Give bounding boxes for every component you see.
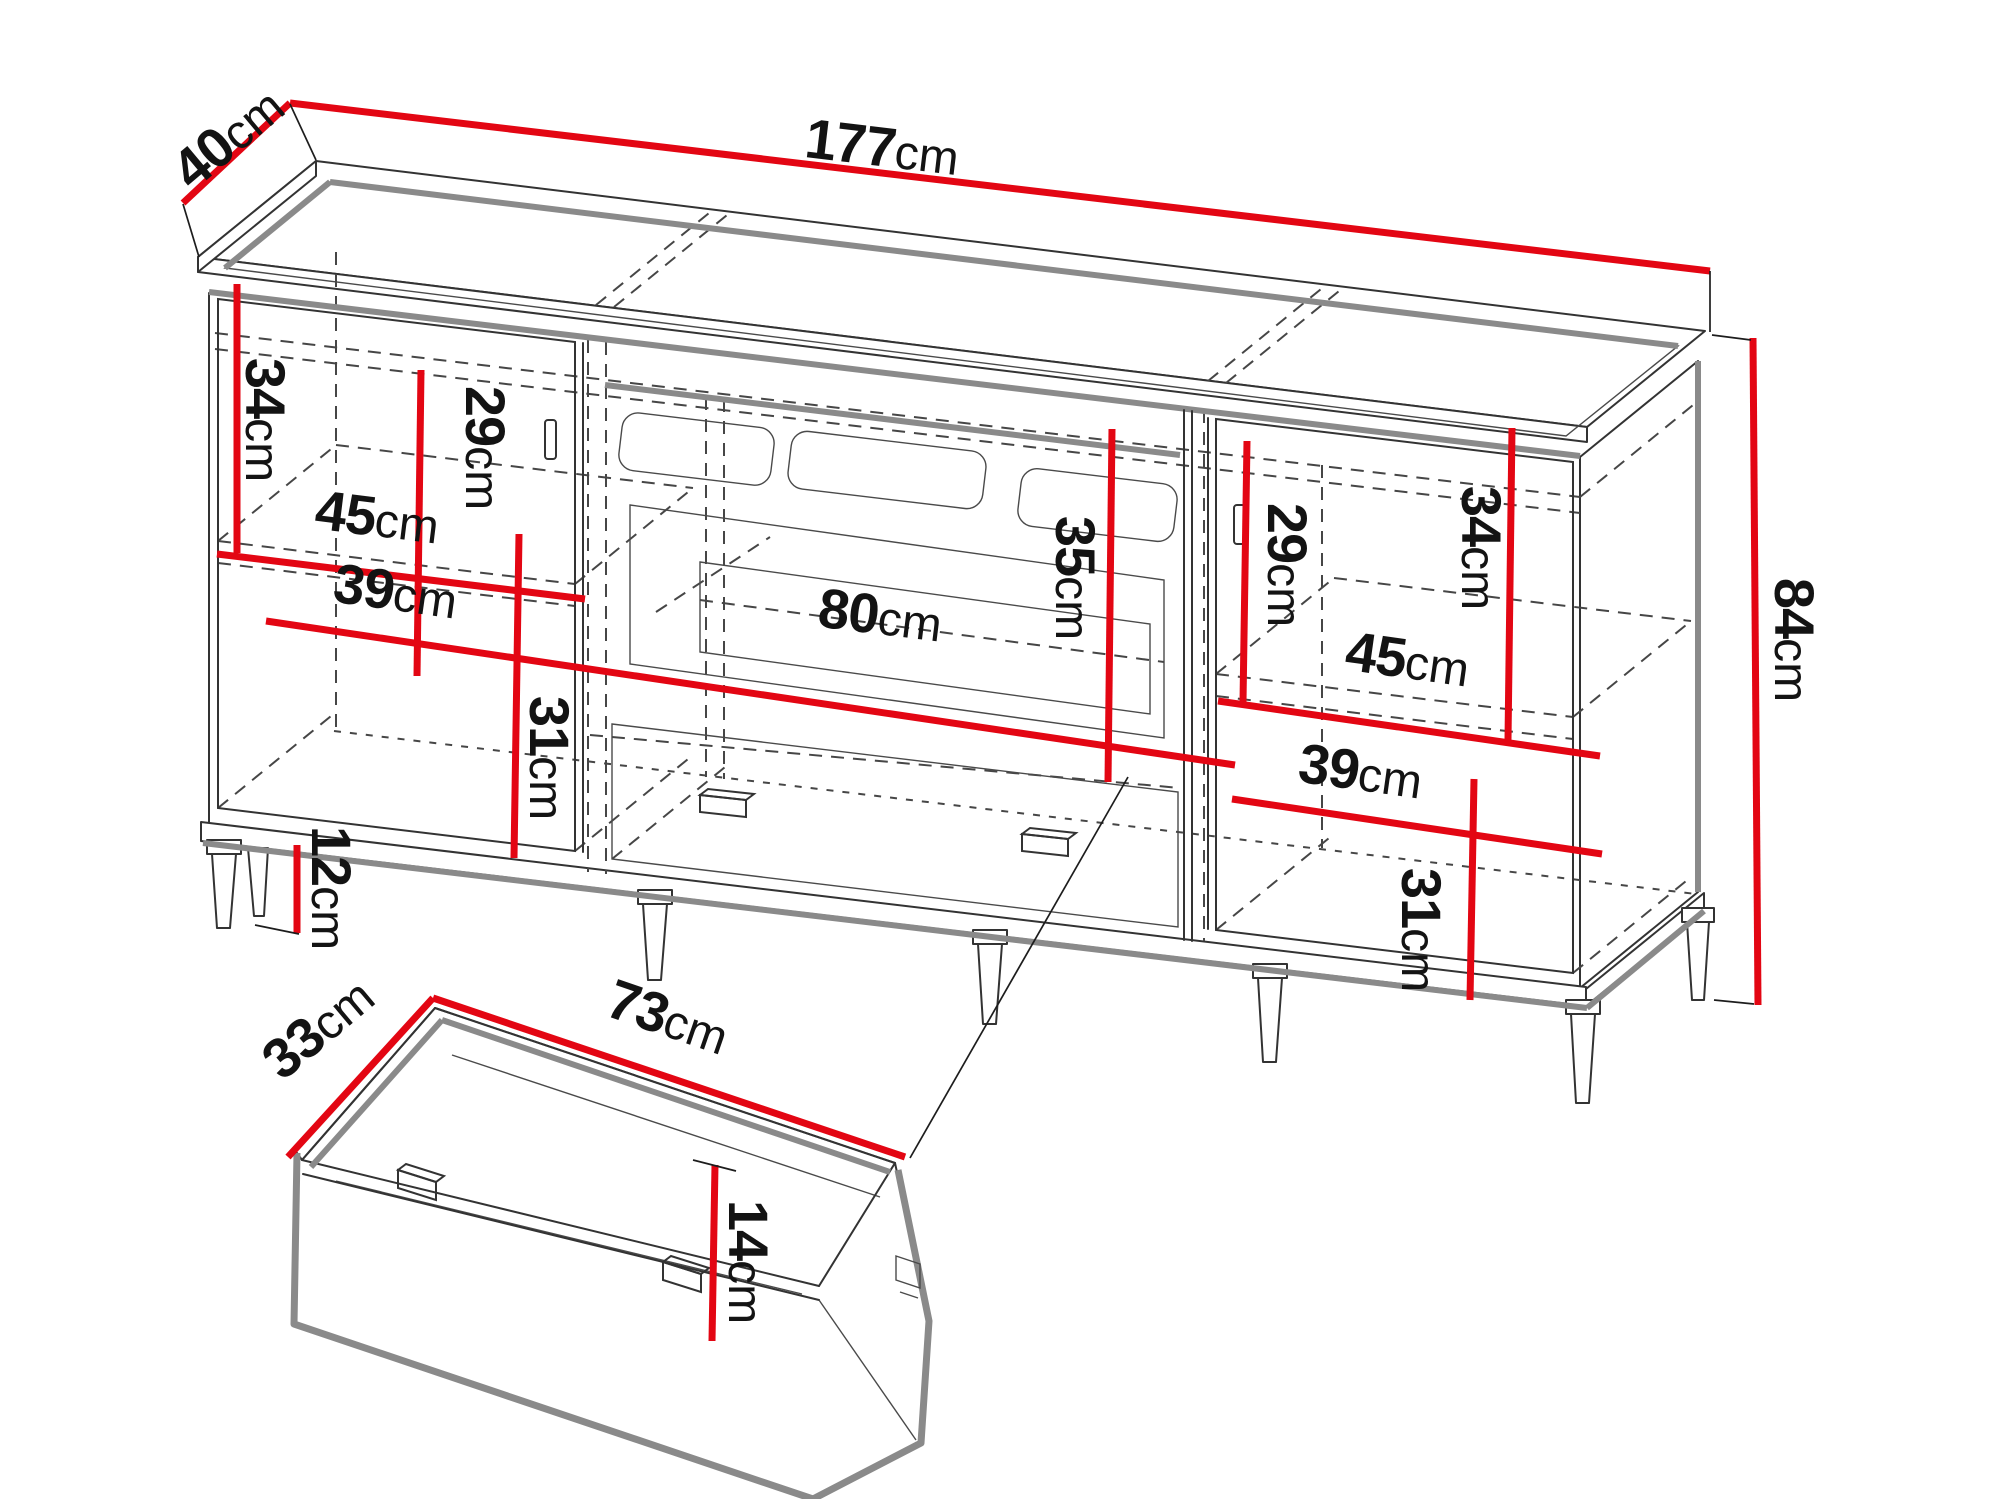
dim-label-width-177: 177cm — [802, 106, 963, 187]
dim-line-fire-35 — [1108, 429, 1112, 782]
dim-line-height-84 — [1753, 338, 1758, 1005]
dim-label-left-29: 29cm — [454, 386, 517, 510]
dim-label-fire-35: 35cm — [1044, 516, 1107, 640]
furniture-dimension-diagram: 40cm 177cm 84cm 34cm 29cm 45cm 39cm 31cm… — [0, 0, 2000, 1499]
dim-label-right-34: 34cm — [1450, 486, 1513, 610]
dim-label-right-31: 31cm — [1390, 868, 1453, 992]
dim-line-right-31 — [1470, 779, 1474, 1000]
dim-label-leg-12: 12cm — [300, 826, 363, 950]
drawer-drawing — [294, 1008, 929, 1499]
dim-label-left-31: 31cm — [518, 696, 581, 820]
dim-label-depth-40: 40cm — [160, 73, 296, 201]
dim-line-drawer-14 — [712, 1165, 715, 1341]
dim-line-right-29 — [1243, 441, 1247, 702]
diagram-page: 40cm 177cm 84cm 34cm 29cm 45cm 39cm 31cm… — [0, 0, 2000, 1499]
dim-label-drawer-14: 14cm — [717, 1200, 780, 1324]
dim-line-right-34 — [1508, 428, 1512, 740]
dim-label-drawer-73: 73cm — [599, 967, 737, 1067]
cabinet-drawing — [198, 161, 1714, 1103]
cabinet-right-face — [1580, 361, 1698, 988]
dim-label-right-29: 29cm — [1256, 503, 1319, 627]
dim-label-left-34: 34cm — [234, 358, 297, 482]
dim-label-height-84: 84cm — [1763, 578, 1826, 702]
